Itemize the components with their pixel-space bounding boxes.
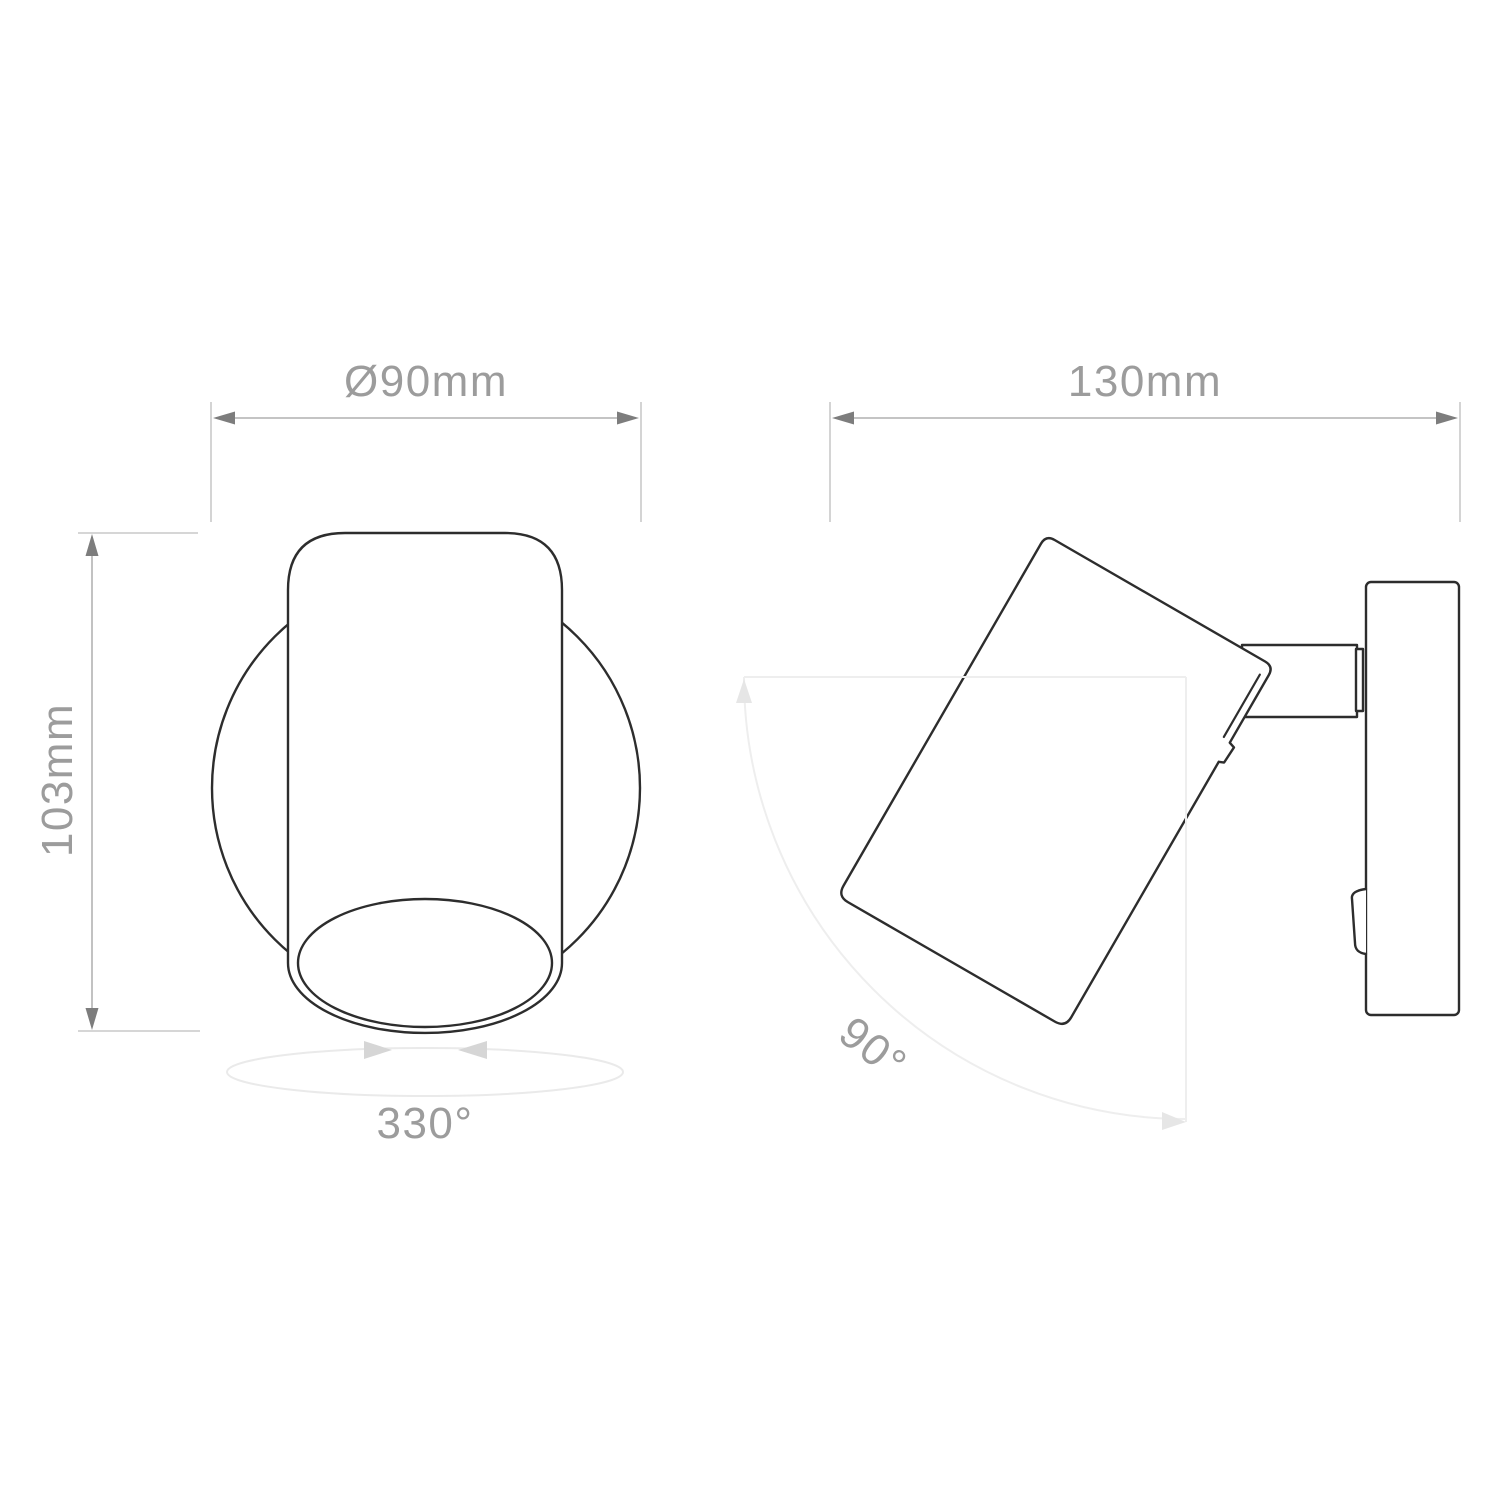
tilt-arrow-right-icon [1162,1112,1186,1130]
arrow-down-icon [86,1008,99,1030]
rotation-indicator [227,1041,623,1096]
diameter-dimension: Ø90mm [211,357,641,522]
side-view: 90° 130mm [736,357,1460,1130]
arrow-left-icon [832,412,854,425]
height-dimension: 103mm [33,533,200,1031]
drawing-page: Ø90mm 103mm 330° [0,0,1500,1500]
mount-connector [1356,649,1363,711]
tilt-range-label: 90° [830,1007,916,1089]
arrow-left-icon [213,412,235,425]
arrow-right-icon [617,412,639,425]
arrow-right-icon [1436,412,1458,425]
spot-opening-rim [298,899,552,1027]
dimension-drawing: Ø90mm 103mm 330° [0,0,1500,1500]
spot-head-outline [838,535,1279,1031]
rotation-arrow-left-icon [364,1041,392,1059]
wall-plate [1366,582,1459,1015]
toggle-switch [1352,889,1366,954]
arrow-up-icon [86,534,99,556]
front-view: Ø90mm 103mm 330° [33,357,641,1148]
diameter-label: Ø90mm [344,357,508,406]
rotation-arrow-right-icon [458,1041,487,1059]
rotation-range-label: 330° [376,1099,473,1148]
rotation-path-ellipse [227,1048,623,1096]
spot-head [838,535,1279,1031]
tilt-arrow-up-icon [736,679,752,703]
width-label: 130mm [1068,357,1222,406]
width-dimension: 130mm [830,357,1460,522]
height-label: 103mm [33,703,82,857]
